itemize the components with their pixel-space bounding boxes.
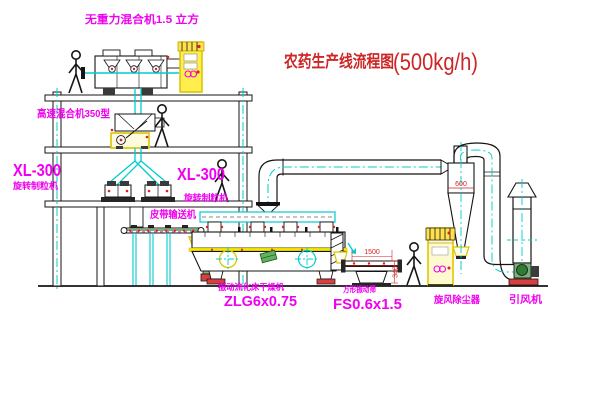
gravity-mixer [81,50,184,95]
mixer-hoppers [104,60,164,72]
conveyor-legs [133,233,170,285]
page-title: 农药生产线流程图 [283,51,394,71]
worker-ground [407,243,421,285]
label-fan: 引风机 [509,293,542,306]
cad-drawing: 无重力混合机1.5 立方 农药生产线流程图 (500kg/h) 高速混合机350… [0,0,600,403]
label-granulator-right-model: XL-300 [177,164,225,184]
dim-screen-1500: 1500 [364,249,380,256]
label-gravity-mixer: 无重力混合机1.5 立方 [84,12,199,26]
process-flow-diagram: 无重力混合机1.5 立方 农药生产线流程图 (500kg/h) 高速混合机350… [0,0,600,403]
page-title-capacity: (500kg/h) [393,49,478,76]
label-dryer-model: ZLG6x0.75 [224,293,297,310]
label-high-speed-mixer: 高速混合机350型 [37,107,110,120]
fluid-bed-dryer [189,212,356,284]
label-screen-model: FS0.6x1.5 [333,296,402,313]
exhaust-duct [256,159,447,213]
y-chute [110,148,166,186]
dim-cyclone-600: 600 [455,181,467,188]
label-cyclone: 旋风除尘器 [433,294,480,306]
label-granulator-left-model: XL-300 [13,160,61,180]
label-screen-name: 方形振动筛 [343,284,376,294]
control-cabinet-right [426,228,455,285]
label-granulator-right-name: 旋转制粒机 [183,192,228,203]
induced-draft-fan [509,263,539,285]
label-dryer-name: 振动流化床干燥机 [218,282,284,292]
control-cabinet-top [178,42,204,92]
worker-top-floor [69,51,83,93]
label-granulator-left-name: 旋转制粒机 [12,180,58,191]
dim-screen-340: 340 [393,266,400,278]
label-belt-conveyor: 皮带输送机 [149,208,196,221]
